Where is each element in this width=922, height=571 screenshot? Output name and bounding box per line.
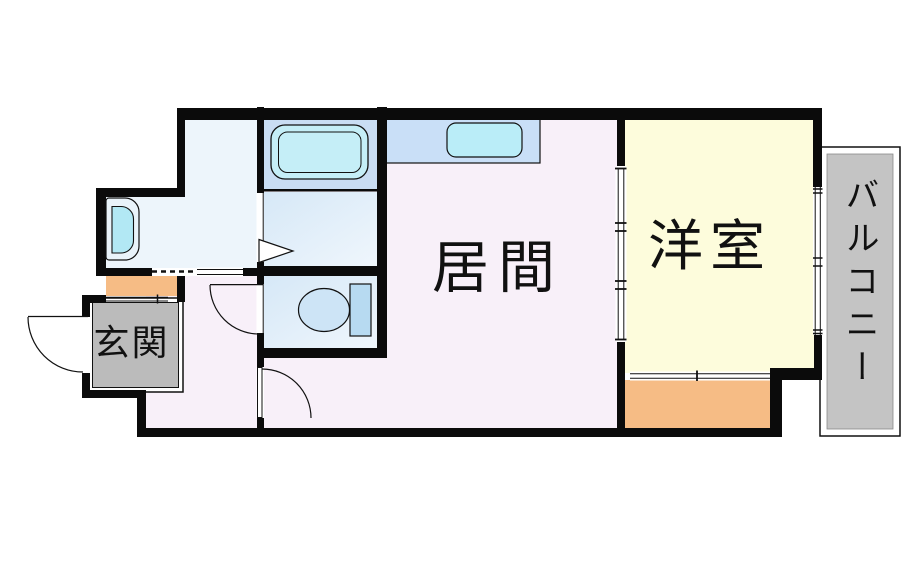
vanity-basin [112,207,134,254]
wall-storage-right [770,368,782,430]
wall-hall-stub [177,276,185,302]
wall-washroom-bottom [96,268,152,276]
wall-wet-right [377,107,387,358]
wall-hall-a [257,276,264,284]
wall-entrance-bottom [82,390,146,398]
window-western-bottom [630,372,770,381]
wall-washroom-top [96,188,185,197]
entrance-step [106,276,177,296]
storage-floor [625,380,770,428]
toilet-tank [350,284,371,336]
wall-shower-toilet [257,266,387,276]
hall-door-leaf [258,368,263,418]
bath-shower-divider-line [263,189,377,192]
wall-washroom-left-upper [177,108,185,196]
room-label-balcony: バルコニー [836,164,876,404]
wall-divider-bottom [617,340,625,432]
kitchen [381,115,540,164]
room-label-living: 居間 [402,240,594,297]
floor-plan: 居間 洋室 玄関 バルコニー [0,0,922,571]
room-label-entrance: 玄関 [83,325,180,361]
wall-right-upper [813,108,822,187]
wall-bottom [137,428,782,437]
kitchen-sink [447,123,522,157]
wall-toilet-bottom [257,348,387,358]
bathtub [271,125,368,179]
wall-entrance-top [82,295,106,303]
wall-left [96,188,106,272]
wall-wash-bath [257,107,264,193]
toilet-bowl [299,289,350,332]
sliding-door-washroom [197,268,243,277]
window-western-right [813,187,823,335]
wall-entrance-left-a [82,303,90,317]
wall-step-vertical [137,396,146,432]
wall-hall-c [257,418,264,432]
wall-hall-b [257,333,264,367]
wall-top [177,108,822,120]
front-door-swing-arc [28,317,83,372]
room-label-western: 洋室 [618,219,802,274]
wall-divider-top [617,110,625,168]
